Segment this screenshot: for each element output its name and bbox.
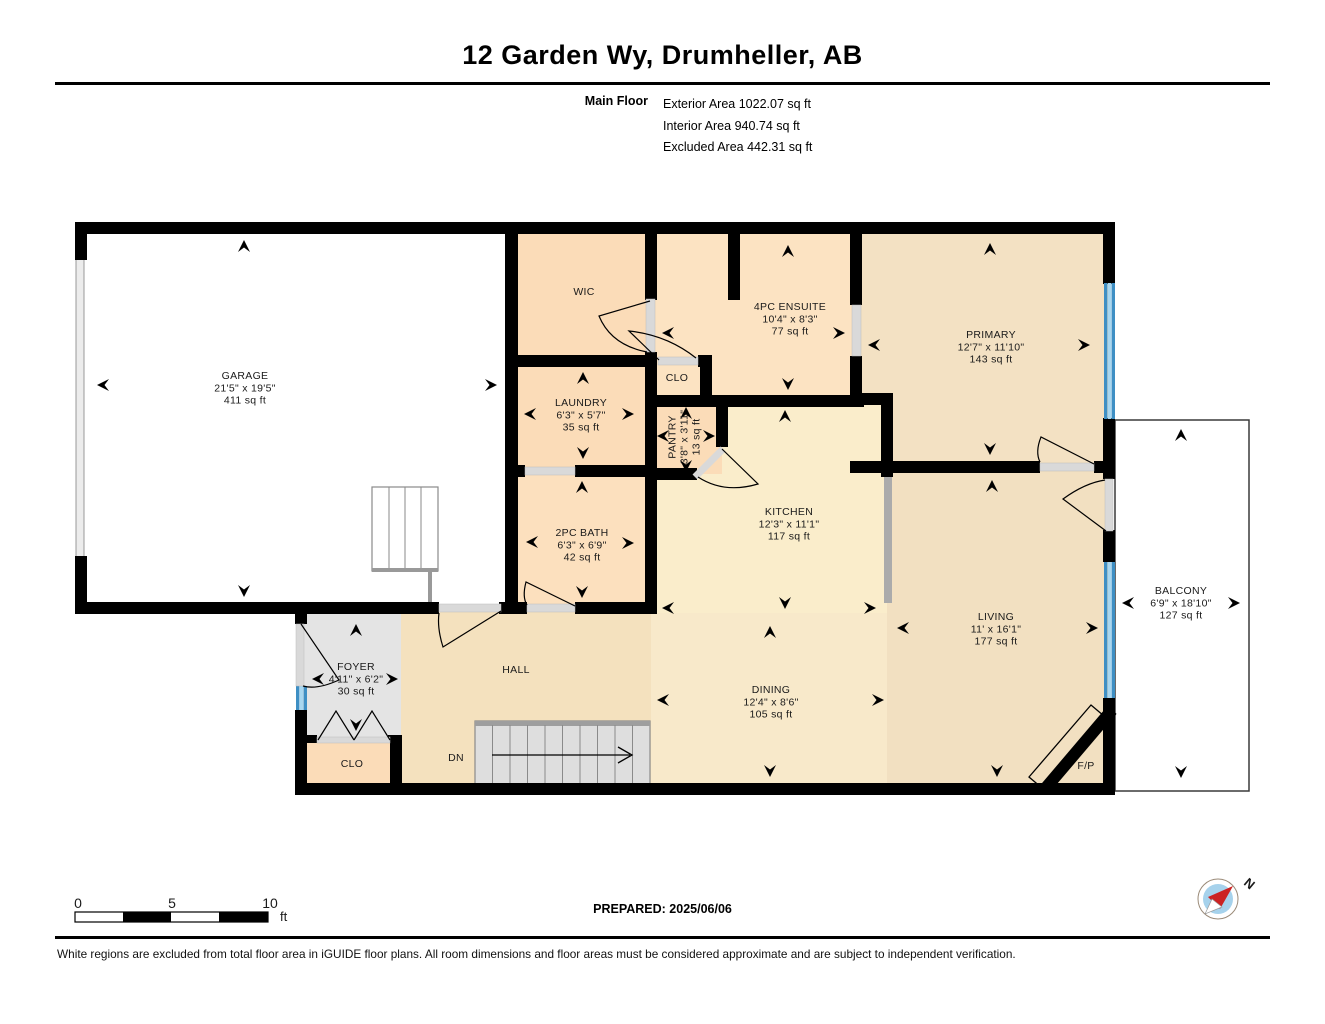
kitchen-counter bbox=[884, 477, 892, 603]
svg-text:F/P: F/P bbox=[1077, 760, 1094, 772]
svg-text:4PC ENSUITE: 4PC ENSUITE bbox=[754, 301, 826, 313]
foyer-window bbox=[296, 686, 307, 710]
svg-text:LAUNDRY: LAUNDRY bbox=[555, 397, 607, 409]
svg-text:10'4" x 8'3": 10'4" x 8'3" bbox=[762, 313, 817, 325]
svg-text:117 sq ft: 117 sq ft bbox=[768, 531, 810, 543]
svg-text:BALCONY: BALCONY bbox=[1155, 585, 1207, 597]
room-label-laundry: LAUNDRY6'3" x 5'7"35 sq ft bbox=[555, 397, 607, 434]
svg-text:12'7" x 11'10": 12'7" x 11'10" bbox=[958, 341, 1025, 353]
primary-window bbox=[1104, 283, 1115, 419]
svg-text:LIVING: LIVING bbox=[978, 611, 1014, 623]
svg-text:12'3" x 11'1": 12'3" x 11'1" bbox=[759, 518, 820, 530]
disclaimer-text: White regions are excluded from total fl… bbox=[57, 947, 1157, 961]
svg-text:GARAGE: GARAGE bbox=[222, 370, 269, 382]
room-label-hall: HALL bbox=[502, 664, 529, 676]
svg-text:FOYER: FOYER bbox=[337, 661, 375, 673]
svg-text:6'3" x 5'7": 6'3" x 5'7" bbox=[556, 409, 605, 421]
room-label-clo-lower: CLO bbox=[341, 758, 364, 770]
svg-text:105 sq ft: 105 sq ft bbox=[750, 709, 793, 721]
room-label-wic: WIC bbox=[573, 286, 594, 298]
svg-text:DN: DN bbox=[448, 752, 464, 764]
svg-text:143 sq ft: 143 sq ft bbox=[970, 354, 1013, 366]
staircase-down bbox=[475, 721, 650, 785]
svg-text:127 sq ft: 127 sq ft bbox=[1160, 610, 1203, 622]
room-fills bbox=[81, 228, 1109, 789]
svg-text:CLO: CLO bbox=[341, 758, 364, 770]
room-label-fireplace: F/P bbox=[1077, 760, 1094, 772]
room-label-clo-upper: CLO bbox=[666, 372, 689, 384]
living-window bbox=[1104, 562, 1115, 698]
room-label-living: LIVING11' x 16'1"177 sq ft bbox=[971, 611, 1022, 648]
svg-text:177 sq ft: 177 sq ft bbox=[975, 636, 1018, 648]
svg-text:6'9" x 18'10": 6'9" x 18'10" bbox=[1150, 597, 1212, 609]
footer-divider bbox=[55, 936, 1270, 939]
svg-text:30 sq ft: 30 sq ft bbox=[338, 686, 375, 698]
room-label-dn: DN bbox=[448, 752, 464, 764]
svg-text:KITCHEN: KITCHEN bbox=[765, 506, 813, 518]
svg-text:HALL: HALL bbox=[502, 664, 529, 676]
svg-text:CLO: CLO bbox=[666, 372, 689, 384]
svg-text:6'3" x 6'9": 6'3" x 6'9" bbox=[557, 539, 606, 551]
svg-text:12'4" x 8'6": 12'4" x 8'6" bbox=[743, 696, 798, 708]
prepared-date: PREPARED: 2025/06/06 bbox=[0, 902, 1325, 916]
svg-text:42 sq ft: 42 sq ft bbox=[564, 552, 601, 564]
floorplan-document: 12 Garden Wy, Drumheller, AB Main Floor … bbox=[0, 0, 1325, 1024]
svg-text:DINING: DINING bbox=[752, 684, 791, 696]
svg-text:35 sq ft: 35 sq ft bbox=[563, 422, 600, 434]
svg-text:2PC BATH: 2PC BATH bbox=[556, 527, 609, 539]
svg-text:13 sq ft: 13 sq ft bbox=[690, 419, 702, 456]
svg-text:21'5" x 19'5": 21'5" x 19'5" bbox=[214, 382, 276, 394]
svg-text:N: N bbox=[1241, 875, 1258, 893]
svg-text:PANTRY: PANTRY bbox=[666, 415, 678, 458]
svg-text:411 sq ft: 411 sq ft bbox=[224, 395, 266, 407]
floor-plan: GARAGE21'5" x 19'5"411 sq ftWIC4PC ENSUI… bbox=[0, 0, 1325, 1024]
svg-text:PRIMARY: PRIMARY bbox=[966, 329, 1016, 341]
room-fill-garage bbox=[81, 228, 511, 608]
svg-text:4'11" x 6'2": 4'11" x 6'2" bbox=[329, 673, 384, 685]
svg-text:77 sq ft: 77 sq ft bbox=[772, 326, 809, 338]
garage-door bbox=[76, 258, 84, 558]
svg-text:3'8" x 3'11": 3'8" x 3'11" bbox=[678, 410, 690, 465]
svg-text:WIC: WIC bbox=[573, 286, 594, 298]
svg-text:11' x 16'1": 11' x 16'1" bbox=[971, 623, 1022, 635]
